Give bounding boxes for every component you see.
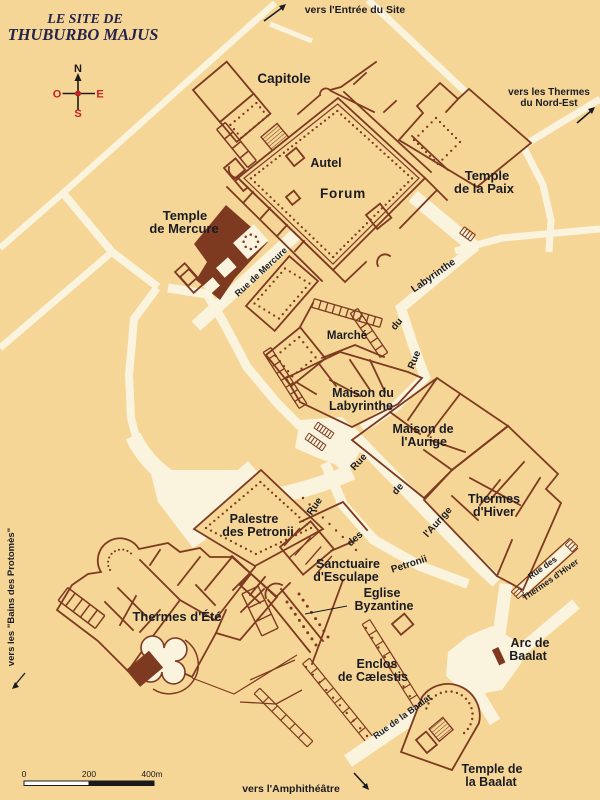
- svg-text:vers l'Entrée du Site: vers l'Entrée du Site: [305, 4, 406, 16]
- svg-text:S: S: [74, 108, 81, 120]
- svg-text:de Mercure: de Mercure: [149, 221, 218, 236]
- svg-text:du Nord-Est: du Nord-Est: [520, 98, 578, 109]
- svg-text:E: E: [96, 89, 103, 101]
- svg-text:Enclos: Enclos: [357, 657, 398, 671]
- svg-text:Forum: Forum: [320, 186, 366, 201]
- svg-text:de la Paix: de la Paix: [454, 181, 515, 196]
- svg-text:l'Aurige: l'Aurige: [401, 435, 447, 449]
- svg-text:Thermes d'Été: Thermes d'Été: [132, 609, 221, 624]
- svg-text:d'Esculape: d'Esculape: [313, 570, 379, 584]
- svg-text:vers les "Bains des Protomès": vers les "Bains des Protomès": [6, 528, 17, 666]
- svg-text:d'Hiver: d'Hiver: [473, 505, 515, 519]
- svg-text:Sanctuaire: Sanctuaire: [316, 557, 380, 571]
- svg-text:des Petronii: des Petronii: [222, 525, 294, 539]
- svg-text:Labyrinthe: Labyrinthe: [329, 399, 393, 413]
- svg-text:O: O: [53, 89, 62, 101]
- svg-text:N: N: [74, 63, 82, 75]
- svg-text:Baalat: Baalat: [509, 649, 547, 663]
- svg-text:la Baalat: la Baalat: [465, 775, 517, 789]
- svg-text:Byzantine: Byzantine: [354, 599, 413, 613]
- svg-text:Capitole: Capitole: [257, 71, 311, 86]
- svg-text:Arc de: Arc de: [511, 636, 550, 650]
- svg-text:THUBURBO MAJUS: THUBURBO MAJUS: [8, 25, 159, 44]
- svg-text:Thermes: Thermes: [468, 492, 520, 506]
- svg-text:de Cælestis: de Cælestis: [338, 670, 408, 684]
- svg-text:0: 0: [22, 769, 27, 779]
- svg-text:Marché: Marché: [327, 330, 367, 342]
- svg-text:200: 200: [82, 769, 96, 779]
- svg-text:vers les Thermes: vers les Thermes: [508, 87, 590, 98]
- svg-text:Maison de: Maison de: [392, 422, 453, 436]
- svg-text:Palestre: Palestre: [230, 512, 279, 526]
- svg-text:400m: 400m: [141, 769, 162, 779]
- svg-text:Eglise: Eglise: [364, 586, 401, 600]
- svg-text:Autel: Autel: [310, 156, 341, 170]
- svg-text:Maison du: Maison du: [332, 386, 394, 400]
- svg-text:vers l'Amphithéâtre: vers l'Amphithéâtre: [242, 783, 340, 795]
- svg-text:Temple de: Temple de: [462, 762, 523, 776]
